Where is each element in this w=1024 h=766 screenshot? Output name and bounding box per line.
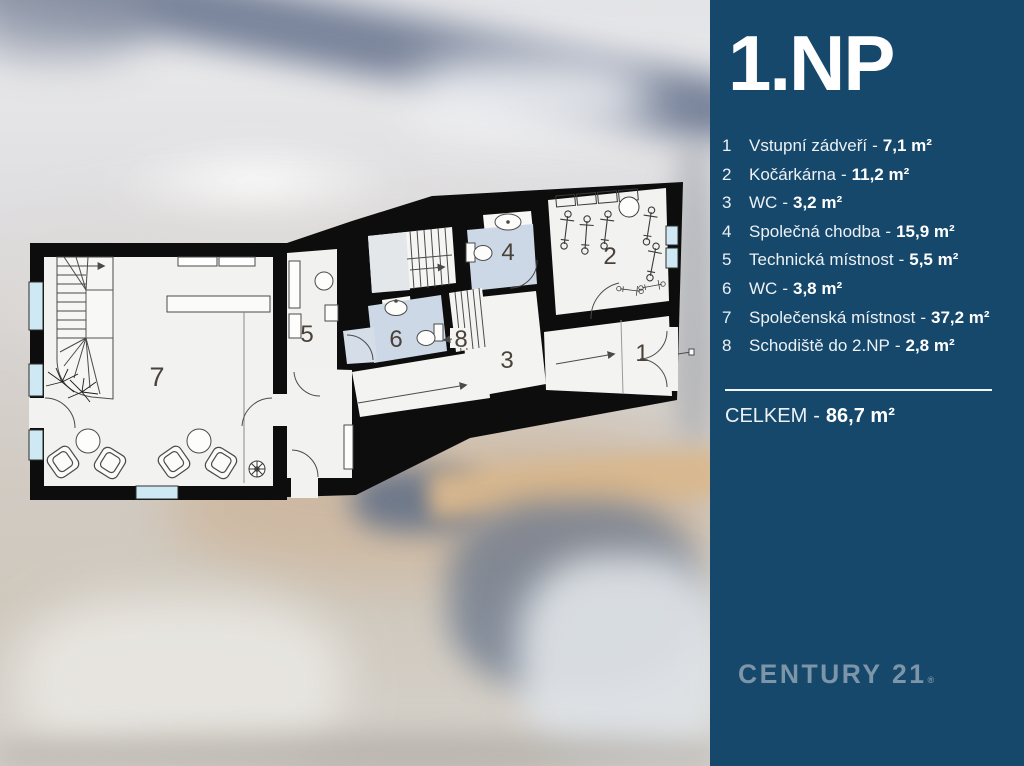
- fan-icon: [249, 461, 265, 477]
- room-label-3: 3: [500, 347, 513, 374]
- registered-mark: ®: [927, 675, 934, 685]
- legend-item: 5Technická místnost-5,5 m²: [722, 250, 1008, 279]
- legend-num: 4: [722, 222, 749, 242]
- legend-num: 8: [722, 336, 749, 356]
- legend-num: 2: [722, 165, 749, 185]
- floor-title: 1.NP: [728, 24, 1008, 102]
- legend-area: 3,8 m²: [793, 279, 842, 299]
- room-label-5: 5: [300, 321, 313, 348]
- legend-name: Vstupní zádveří: [749, 136, 867, 156]
- legend-area: 5,5 m²: [909, 250, 958, 270]
- legend-num: 1: [722, 136, 749, 156]
- legend-sidebar: 1.NP 1Vstupní zádveří-7,1 m² 2Kočárkárna…: [710, 0, 1024, 766]
- legend-name: WC: [749, 279, 777, 299]
- legend-name: Společenská místnost: [749, 308, 915, 328]
- total-label: CELKEM: [725, 405, 807, 428]
- room-label-7: 7: [149, 362, 164, 392]
- legend-item: 7Společenská místnost-37,2 m²: [722, 308, 1008, 337]
- legend-num: 7: [722, 308, 749, 328]
- legend-area: 7,1 m²: [883, 136, 932, 156]
- divider: [725, 389, 992, 391]
- legend-item: 3WC-3,2 m²: [722, 193, 1008, 222]
- legend-area: 11,2 m²: [852, 165, 910, 185]
- total-value: 86,7 m²: [826, 405, 895, 428]
- century21-logo: CENTURY 21®: [738, 659, 934, 690]
- room-label-4: 4: [501, 239, 514, 266]
- legend-item: 8Schodiště do 2.NP-2,8 m²: [722, 336, 1008, 365]
- legend-name: Společná chodba: [749, 222, 880, 242]
- legend-area: 37,2 m²: [931, 308, 990, 328]
- legend-item: 6WC-3,8 m²: [722, 279, 1008, 308]
- legend-area: 3,2 m²: [793, 193, 842, 213]
- legend-area: 2,8 m²: [905, 336, 954, 356]
- legend-area: 15,9 m²: [896, 222, 955, 242]
- room-label-1: 1: [635, 340, 648, 367]
- room-legend: 1Vstupní zádveří-7,1 m² 2Kočárkárna-11,2…: [722, 136, 1008, 365]
- legend-name: Schodiště do 2.NP: [749, 336, 890, 356]
- screenshot-stage: 7 5 6 8 4 3 2 1 1.NP 1Vstupní zádveří-7,…: [0, 0, 1024, 766]
- total-area-row: CELKEM-86,7 m²: [725, 405, 1008, 428]
- legend-name: Kočárkárna: [749, 165, 836, 185]
- room-label-8: 8: [454, 326, 467, 353]
- room-label-2: 2: [603, 243, 616, 270]
- legend-item: 4Společná chodba-15,9 m²: [722, 222, 1008, 251]
- legend-num: 6: [722, 279, 749, 299]
- legend-item: 2Kočárkárna-11,2 m²: [722, 165, 1008, 194]
- room-label-6: 6: [389, 326, 402, 353]
- legend-num: 3: [722, 193, 749, 213]
- staircase-room7: [57, 257, 113, 399]
- legend-num: 5: [722, 250, 749, 270]
- legend-item: 1Vstupní zádveří-7,1 m²: [722, 136, 1008, 165]
- floor-plan: 7 5 6 8 4 3 2 1: [0, 0, 710, 766]
- legend-name: Technická místnost: [749, 250, 894, 270]
- legend-name: WC: [749, 193, 777, 213]
